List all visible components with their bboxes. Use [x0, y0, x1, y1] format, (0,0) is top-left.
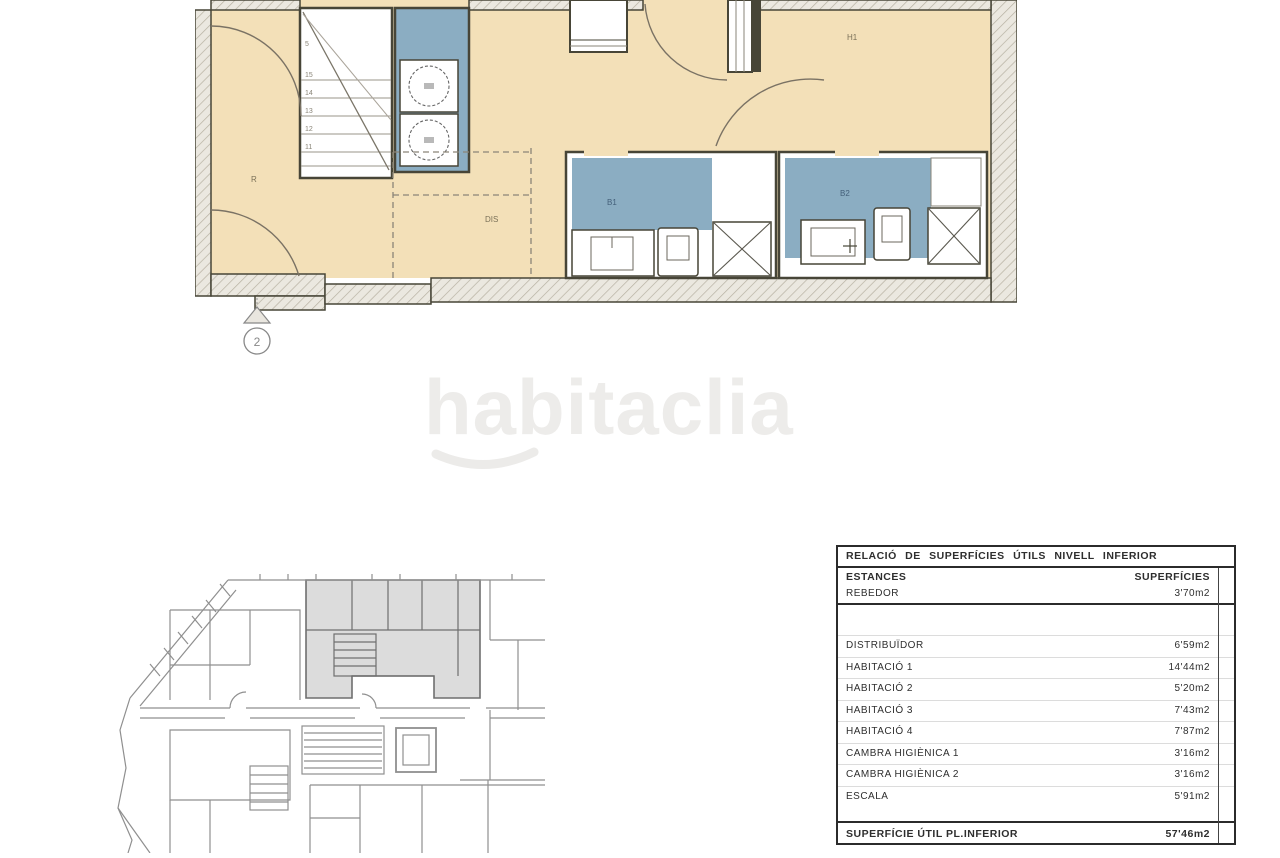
total-value: 57'46m2 [1165, 823, 1210, 846]
watermark-swoosh-icon [430, 446, 540, 476]
table-row: HABITACIÓ 3 7'43m2 [838, 700, 1234, 722]
room-area: 5'20m2 [1175, 679, 1211, 700]
col-header-estances: ESTANCES [846, 568, 906, 586]
key-plan-drawing [110, 570, 545, 853]
room-label-habitacio1: H1 [847, 33, 858, 42]
table-row: HABITACIÓ 1 14'44m2 [838, 657, 1234, 679]
room-name: REBEDOR [846, 586, 899, 603]
appliance-label-mark [424, 137, 434, 143]
highlighted-unit [306, 580, 480, 698]
room-area: 7'43m2 [1175, 701, 1211, 722]
room-area: 7'87m2 [1175, 722, 1211, 743]
room-area: 6'59m2 [1175, 636, 1211, 657]
table-row: DISTRIBUÏDOR 6'59m2 [838, 635, 1234, 657]
total-label: SUPERFÍCIE ÚTIL PL.INFERIOR [846, 823, 1018, 846]
room-area: 3'16m2 [1175, 744, 1211, 765]
room-area: 14'44m2 [1168, 658, 1210, 679]
room-name: CAMBRA HIGIÈNICA 1 [846, 744, 959, 765]
stair-number: 12 [305, 126, 313, 133]
stair-number: 14 [305, 90, 313, 97]
wall-pier [752, 0, 761, 72]
table-row: CAMBRA HIGIÈNICA 1 3'16m2 [838, 743, 1234, 765]
main-floor-plan-drawing: 5 15 14 13 12 11 [195, 0, 1017, 360]
stair-number: 5 [305, 41, 309, 48]
table-row: REBEDOR 3'70m2 [838, 586, 1234, 605]
room-area: 3'16m2 [1175, 765, 1211, 786]
room-name: HABITACIÓ 4 [846, 722, 913, 743]
table-title: RELACIÓ DE SUPERFÍCIES ÚTILS NIVELL INFE… [838, 547, 1234, 568]
room-label-bany1: B1 [607, 198, 617, 207]
habitaclia-watermark: habitaclia [424, 362, 884, 453]
col-header-superficies: SUPERFÍCIES [1134, 568, 1210, 586]
table-spacer [838, 807, 1234, 821]
table-row: CAMBRA HIGIÈNICA 2 3'16m2 [838, 764, 1234, 786]
room-label-rebedor: R [251, 175, 257, 184]
room-area: 5'91m2 [1175, 787, 1211, 808]
room-name: HABITACIÓ 2 [846, 679, 913, 700]
main-floor-plan: 5 15 14 13 12 11 [195, 0, 1017, 365]
table-header-row: ESTANCES SUPERFÍCIES [838, 568, 1234, 586]
room-label-distribuidor: DIS [485, 215, 498, 224]
table-total-row: SUPERFÍCIE ÚTIL PL.INFERIOR 57'46m2 [838, 821, 1234, 846]
surface-table: RELACIÓ DE SUPERFÍCIES ÚTILS NIVELL INFE… [836, 545, 1236, 845]
room-name: CAMBRA HIGIÈNICA 2 [846, 765, 959, 786]
building-key-plan [110, 570, 545, 858]
staircase: 5 15 14 13 12 11 [300, 8, 392, 178]
bathroom-2 [779, 149, 987, 278]
appliance-label-mark [424, 83, 434, 89]
section-marker-number: 2 [254, 335, 261, 349]
toilet-icon [658, 228, 698, 276]
stair-number: 11 [305, 144, 312, 151]
utility-shaft [395, 8, 469, 172]
floorplan-page: { "watermark": { "text": "habitaclia" },… [0, 0, 1280, 853]
room-name: HABITACIÓ 1 [846, 658, 913, 679]
stair-number: 15 [305, 72, 313, 79]
bathroom-1 [566, 149, 776, 278]
stair-number: 13 [305, 108, 313, 115]
bathroom2-door-opening [835, 149, 879, 156]
table-row: ESCALA 5'91m2 [838, 786, 1234, 808]
bathroom1-door-opening [584, 149, 628, 156]
room-area: 3'70m2 [1175, 586, 1211, 603]
room-name: DISTRIBUÏDOR [846, 636, 924, 657]
table-row: HABITACIÓ 4 7'87m2 [838, 721, 1234, 743]
room-name: ESCALA [846, 787, 888, 808]
table-row: HABITACIÓ 2 5'20m2 [838, 678, 1234, 700]
table-spacer [838, 605, 1234, 635]
table-column-divider [1218, 568, 1219, 843]
room-name: HABITACIÓ 3 [846, 701, 913, 722]
room-label-bany2: B2 [840, 189, 850, 198]
